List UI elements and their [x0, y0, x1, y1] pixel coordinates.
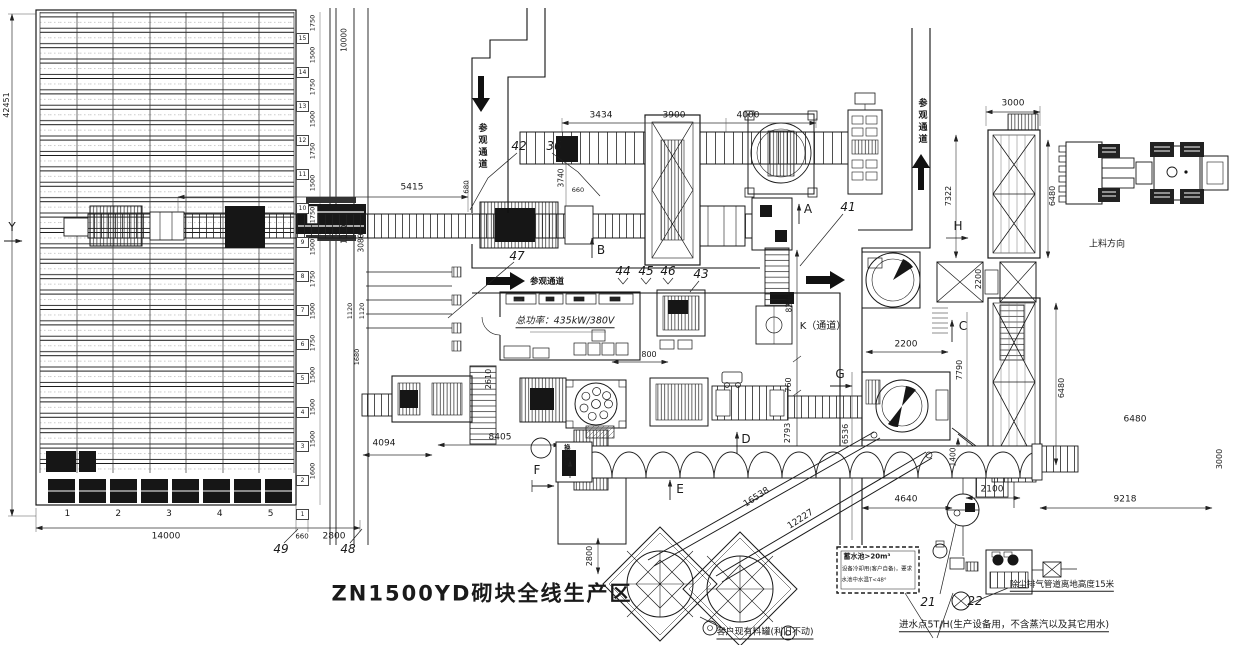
dim-8240: 8240	[785, 293, 793, 312]
callout-49: 49	[273, 543, 288, 555]
cad-linework	[0, 0, 1241, 645]
dim-3434: 3434	[590, 112, 613, 121]
water-note-line3: 水池中水温T<48°	[841, 578, 886, 584]
dim-4094: 4094	[373, 440, 396, 449]
marker-f: F	[534, 464, 541, 476]
dim-2100: 2100	[981, 486, 1004, 495]
drawing-title: ZN1500YD砌块全线生产区	[332, 584, 633, 605]
row-number: 2	[296, 475, 309, 486]
column-number: 2	[93, 509, 144, 519]
wheel-loader	[1059, 142, 1228, 204]
rack-column-numbers: 12345	[42, 509, 296, 519]
dim-3080: 3080	[357, 233, 365, 252]
dim-4000: 4000	[737, 112, 760, 121]
dim-760: 760	[785, 377, 793, 392]
dim-4640: 4640	[895, 496, 918, 505]
dim-1120-b: 1120	[359, 303, 366, 320]
dim-5415: 5415	[401, 184, 424, 193]
row-number: 9	[296, 237, 309, 248]
row-number: 14	[296, 67, 309, 78]
dim-2200-horiz: 2200	[895, 341, 918, 350]
dim-2800-tank: 2800	[586, 546, 594, 566]
marker-d: D	[741, 433, 750, 445]
inlet-note: 进水点5T/H(生产设备用，不含蒸汽以及其它用水)	[899, 620, 1109, 632]
dim-10000-top: 10000	[340, 28, 348, 52]
dim-2800: 2800	[323, 533, 346, 542]
dim-7790: 7790	[956, 360, 964, 380]
row-number: 4	[296, 407, 309, 418]
column-number: 3	[144, 509, 195, 519]
tank-note: 客户现有料罐(利旧不动)	[716, 629, 813, 640]
marker-c: C	[959, 320, 967, 332]
power-note: 总功率：435kW/380V	[516, 316, 615, 328]
axis-y: Y	[8, 221, 15, 233]
dim-6480-mid: 6480	[1058, 378, 1066, 398]
marker-e: E	[676, 483, 684, 495]
row-number: 13	[296, 101, 309, 112]
callout-36: 36	[546, 140, 561, 152]
water-note-line2: 设备冷却用(客户自备)，要求	[842, 567, 912, 573]
loading-direction: 上料方向	[1089, 241, 1125, 250]
callout-42: 42	[511, 140, 526, 152]
dim-8405: 8405	[489, 434, 512, 443]
column-number: 1	[42, 509, 93, 519]
screw-conveyor	[531, 426, 1042, 574]
callout-41: 41	[840, 201, 855, 213]
callout-21: 21	[920, 596, 935, 608]
dim-660-b: 660	[572, 187, 584, 194]
row-number: 8	[296, 271, 309, 282]
row-number: 7	[296, 305, 309, 316]
row-number: 11	[296, 169, 309, 180]
row-number: 6	[296, 339, 309, 350]
dim-3900: 3900	[663, 112, 686, 121]
dim-2610: 2610	[485, 369, 493, 389]
row-number: 3	[296, 441, 309, 452]
passage-label-right: 参观通道	[917, 98, 926, 146]
callout-43: 43	[693, 268, 708, 280]
dim-2793: 2793	[784, 423, 792, 443]
callout-48: 48	[340, 543, 355, 555]
marker-b: B	[597, 244, 605, 256]
row-number: 10	[296, 203, 309, 214]
row-number: 1	[296, 509, 309, 520]
callout-45: 45	[638, 265, 653, 277]
drawing-canvas: 42451 Y 17501500175015001750150017501500…	[0, 0, 1241, 645]
dim-3000-top: 3000	[1002, 100, 1025, 109]
dim-6480-top: 6480	[1049, 186, 1057, 206]
dim-10000-mid: 10000	[340, 220, 348, 244]
callout-46: 46	[660, 265, 675, 277]
dim-3740: 3740	[557, 168, 565, 187]
dust-note: 除尘排气管道离地高度15米	[1010, 581, 1114, 592]
mold-change-label: 换模位	[563, 444, 570, 467]
column-number: 5	[245, 509, 296, 519]
marker-a: A	[804, 203, 812, 215]
mixer-area	[793, 250, 1212, 540]
rack-row-numbers: 151413121110987654321	[296, 33, 309, 520]
water-note-line1: 蓄水池>20m³	[844, 554, 891, 561]
row-number: 15	[296, 33, 309, 44]
dim-7322: 7322	[945, 186, 953, 206]
dim-14000: 14000	[152, 533, 181, 542]
passage-label-top-left: 参观通道	[477, 123, 486, 171]
dim-6480-bottom: 6480	[1124, 416, 1147, 425]
dim-680: 680	[464, 180, 471, 193]
dim-1120-a: 1120	[347, 303, 354, 320]
dim-1680: 1680	[354, 349, 361, 366]
callout-44: 44	[615, 265, 630, 277]
callout-22: 22	[967, 595, 982, 607]
passage-label-middle: 参观通道	[530, 278, 564, 287]
dim-1400: 1400	[949, 447, 957, 466]
callout-47: 47	[509, 250, 524, 262]
marker-k: K（通道）	[800, 322, 847, 332]
dim-42451: 42451	[3, 92, 11, 117]
dim-9218: 9218	[1114, 496, 1137, 505]
dim-6536: 6536	[842, 424, 850, 444]
dim-3000-right: 3000	[1216, 449, 1224, 469]
dim-2200-vert: 2200	[975, 269, 983, 289]
marker-g: G	[835, 368, 844, 380]
row-number: 5	[296, 373, 309, 384]
chain-dim: 1750	[307, 15, 317, 32]
marker-h: H	[953, 220, 962, 232]
column-number: 4	[194, 509, 245, 519]
dim-660: 660	[295, 534, 308, 541]
row-number: 12	[296, 135, 309, 146]
dim-800: 800	[641, 351, 656, 359]
